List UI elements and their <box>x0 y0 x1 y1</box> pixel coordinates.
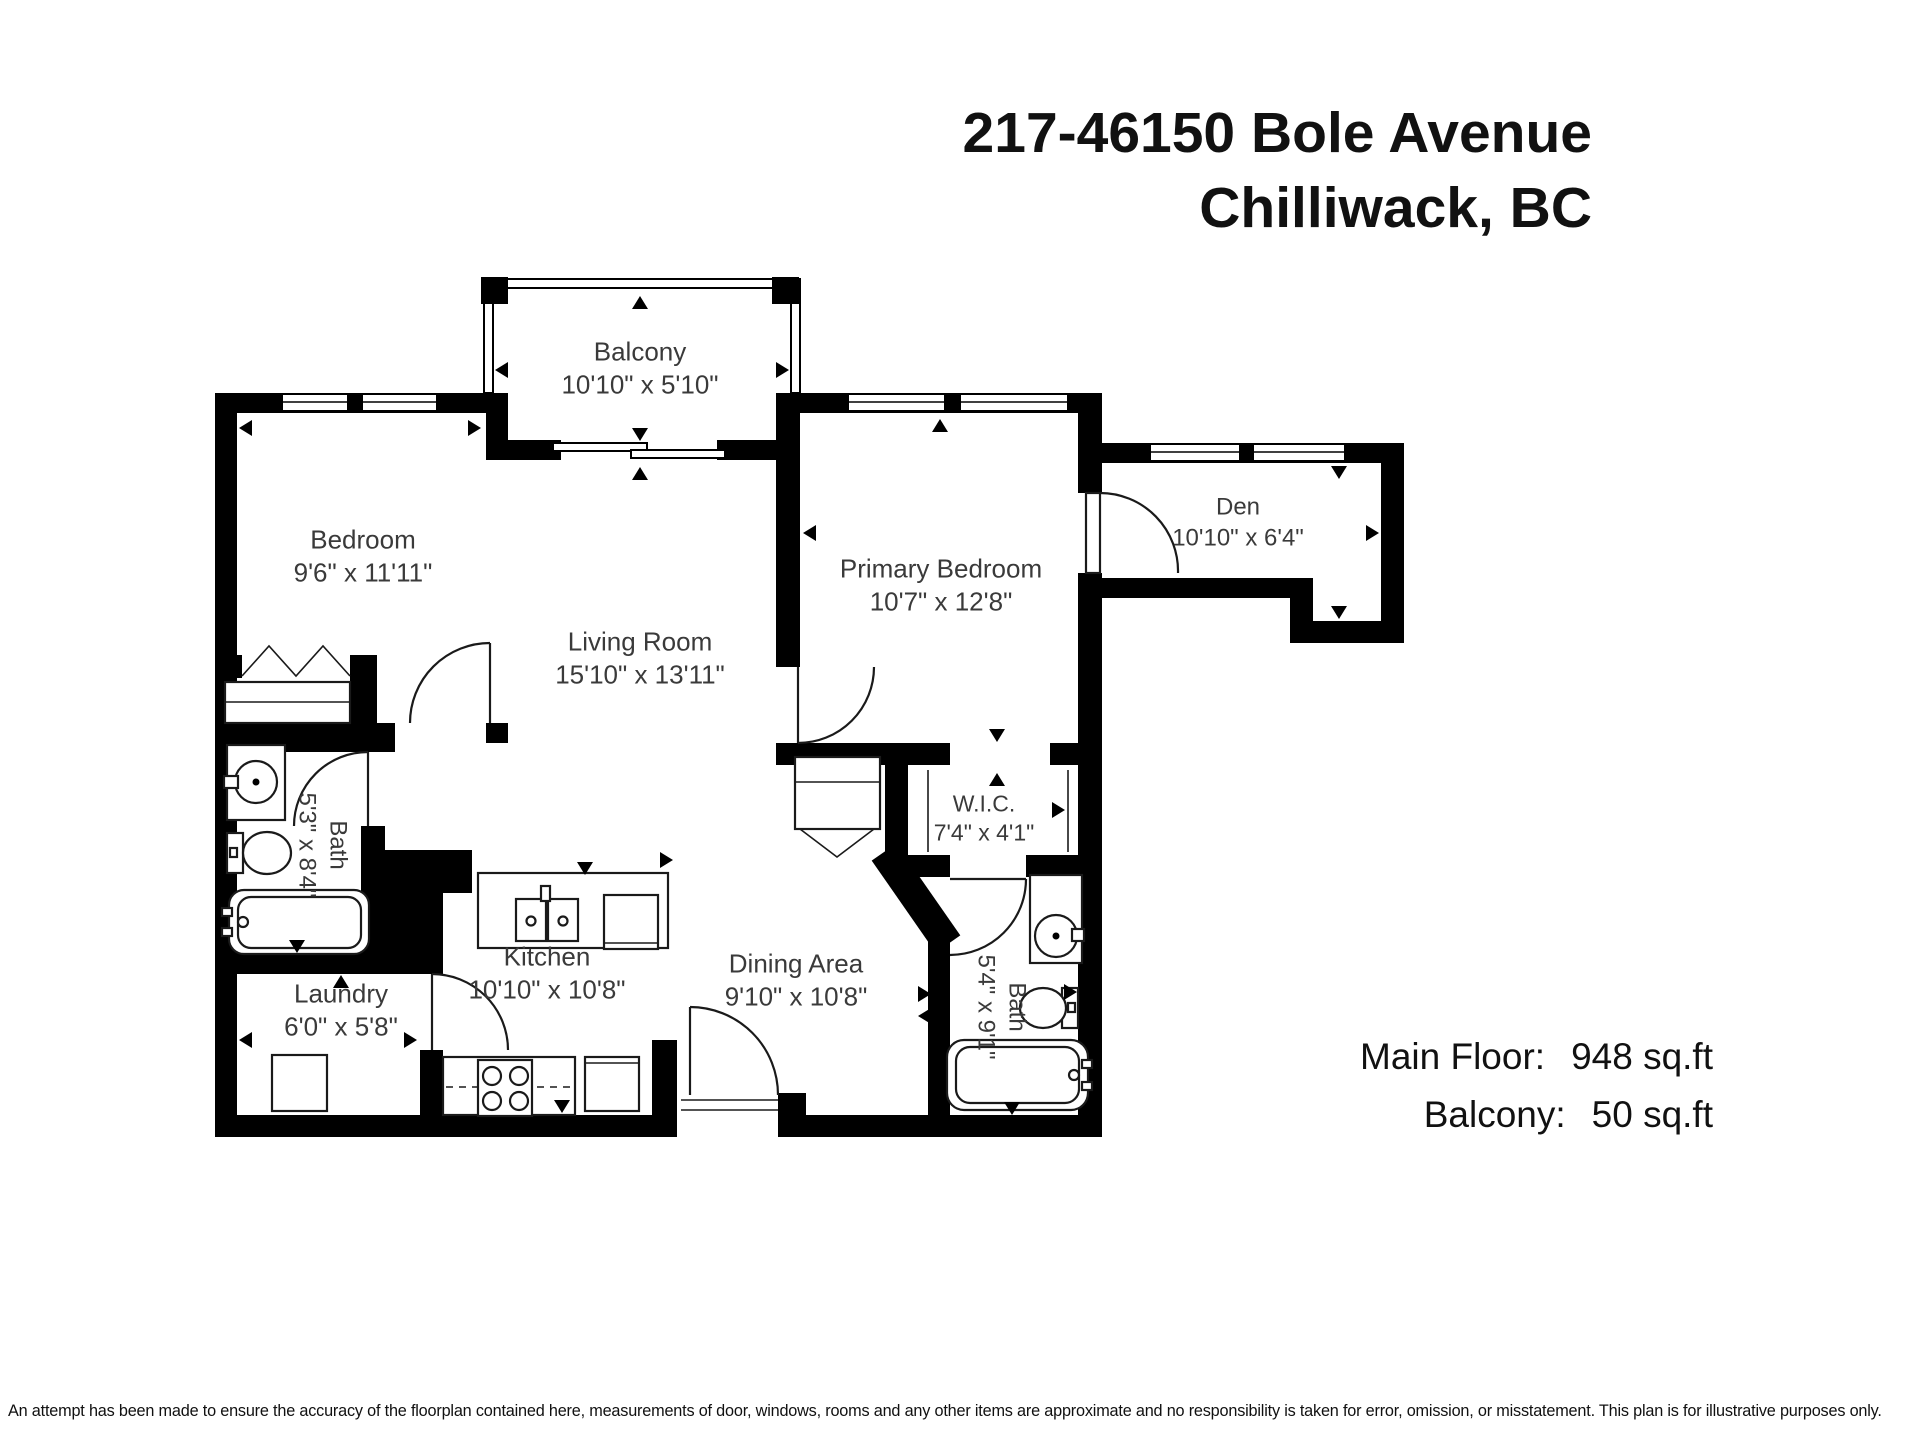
room-dims: 5'3" x 8'4" <box>291 793 322 898</box>
balcony-area: Balcony: 50 sq.ft <box>1360 1086 1713 1144</box>
room-label-kitchen: Kitchen 10'10" x 10'8" <box>468 941 625 1008</box>
address-line-2: Chilliwack, BC <box>963 171 1592 246</box>
room-label-den: Den 10'10" x 6'4" <box>1172 492 1304 553</box>
main-floor-area: Main Floor: 948 sq.ft <box>1360 1028 1713 1086</box>
floorplan-page: Balcony 10'10" x 5'10" Bedroom 9'6" x 11… <box>0 0 1920 1440</box>
room-dims: 10'10" x 6'4" <box>1172 523 1304 554</box>
room-dims: 9'6" x 11'11" <box>294 557 433 590</box>
room-label-primary-bedroom: Primary Bedroom 10'7" x 12'8" <box>840 553 1042 620</box>
room-label-wic: W.I.C. 7'4" x 4'1" <box>934 790 1035 849</box>
room-label-living-room: Living Room 15'10" x 13'11" <box>555 626 725 693</box>
room-dims: 10'10" x 10'8" <box>468 974 625 1007</box>
balcony-label: Balcony: <box>1424 1086 1566 1144</box>
room-label-balcony: Balcony 10'10" x 5'10" <box>561 336 718 403</box>
room-label-dining-area: Dining Area 9'10" x 10'8" <box>725 948 868 1015</box>
room-name: Primary Bedroom <box>840 553 1042 586</box>
room-dims: 6'0" x 5'8" <box>284 1011 398 1044</box>
room-dims: 5'4" x 9'1" <box>970 955 1001 1060</box>
room-dims: 15'10" x 13'11" <box>555 659 725 692</box>
laundry-fixtures <box>272 1055 327 1111</box>
room-name: Kitchen <box>468 941 625 974</box>
main-floor-value: 948 sq.ft <box>1571 1028 1713 1086</box>
room-dims: 9'10" x 10'8" <box>725 981 868 1014</box>
room-label-laundry: Laundry 6'0" x 5'8" <box>284 978 398 1045</box>
main-floor-label: Main Floor: <box>1360 1028 1545 1086</box>
address-line-1: 217-46150 Bole Avenue <box>963 96 1592 171</box>
room-name: Laundry <box>284 978 398 1011</box>
room-name: Balcony <box>561 336 718 369</box>
address-title: 217-46150 Bole Avenue Chilliwack, BC <box>963 96 1592 246</box>
room-dims: 7'4" x 4'1" <box>934 819 1035 848</box>
disclaimer-text: An attempt has been made to ensure the a… <box>8 1402 1887 1421</box>
room-name: W.I.C. <box>934 790 1035 819</box>
room-dims: 10'10" x 5'10" <box>561 369 718 402</box>
room-name: Den <box>1172 492 1304 523</box>
room-label-bedroom: Bedroom 9'6" x 11'11" <box>294 524 433 591</box>
area-summary: Main Floor: 948 sq.ft Balcony: 50 sq.ft <box>1360 1028 1713 1144</box>
room-dims: 10'7" x 12'8" <box>840 586 1042 619</box>
room-name: Dining Area <box>725 948 868 981</box>
balcony-value: 50 sq.ft <box>1592 1086 1713 1144</box>
room-label-bath-1: Bath 5'3" x 8'4" <box>291 793 352 898</box>
room-label-bath-2: Bath 5'4" x 9'1" <box>970 955 1031 1060</box>
room-name: Bedroom <box>294 524 433 557</box>
room-name: Living Room <box>555 626 725 659</box>
room-name: Bath <box>322 793 353 898</box>
floorplan-drawing <box>0 0 1920 1440</box>
room-name: Bath <box>1001 955 1032 1060</box>
